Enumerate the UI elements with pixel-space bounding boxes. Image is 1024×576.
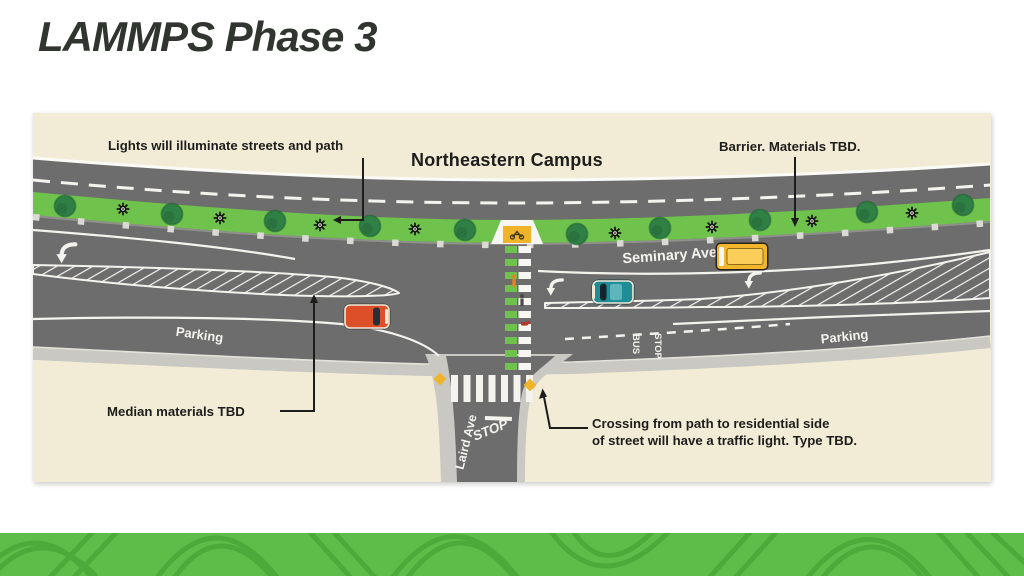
crossing-annotation-line1: Crossing from path to residential side (592, 416, 829, 431)
lights-annotation: Lights will illuminate streets and path (108, 138, 343, 153)
teal-car (592, 280, 635, 305)
barrier-annotation: Barrier. Materials TBD. (719, 139, 860, 154)
pedestrian-icon (512, 274, 516, 287)
yellow-bus (716, 243, 769, 271)
slide: LAMMPS Phase 3 (0, 0, 1024, 576)
path-crossing-ladder (505, 246, 531, 373)
pedestrian-icon (520, 294, 524, 306)
bus-pavement-word: BUS (630, 334, 641, 354)
laird-crosswalk (451, 375, 536, 402)
diagram-panel: Seminary Ave Parking Parking BUS STOP La… (33, 113, 991, 482)
median-annotation: Median materials TBD (107, 404, 245, 419)
red-car (344, 304, 391, 330)
footer-band (0, 533, 1024, 576)
street-diagram: Seminary Ave Parking Parking BUS STOP La… (33, 113, 991, 482)
stop-pavement-word: STOP (652, 333, 663, 359)
campus-label: Northeastern Campus (411, 150, 603, 170)
crossing-annotation-line2: of street will have a traffic light. Typ… (592, 433, 857, 448)
page-title: LAMMPS Phase 3 (38, 14, 376, 60)
